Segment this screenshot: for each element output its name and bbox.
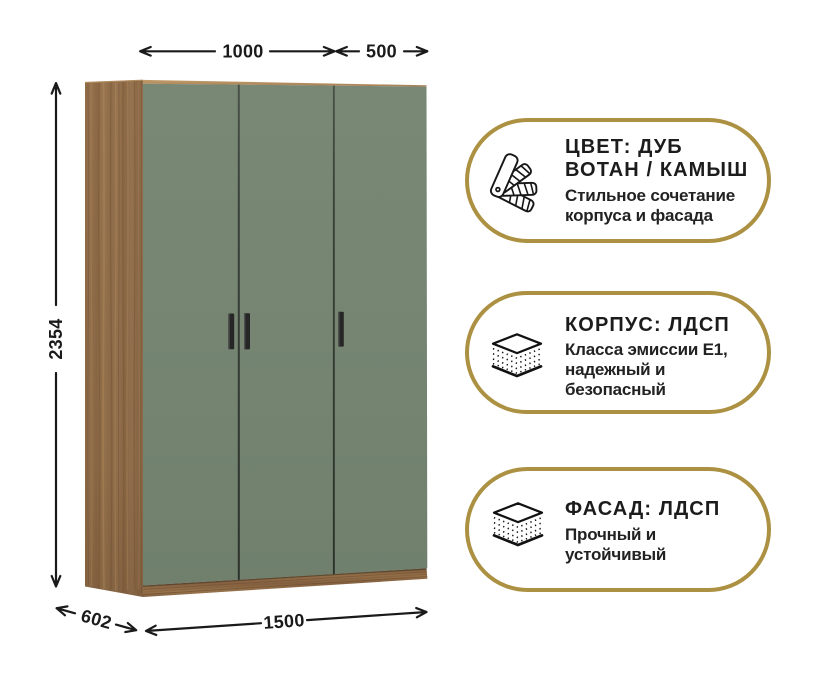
svg-text:500: 500 bbox=[366, 41, 397, 61]
svg-text:602: 602 bbox=[79, 606, 114, 634]
svg-text:2354: 2354 bbox=[46, 318, 66, 359]
svg-text:1500: 1500 bbox=[263, 610, 306, 633]
svg-text:1000: 1000 bbox=[222, 41, 263, 61]
